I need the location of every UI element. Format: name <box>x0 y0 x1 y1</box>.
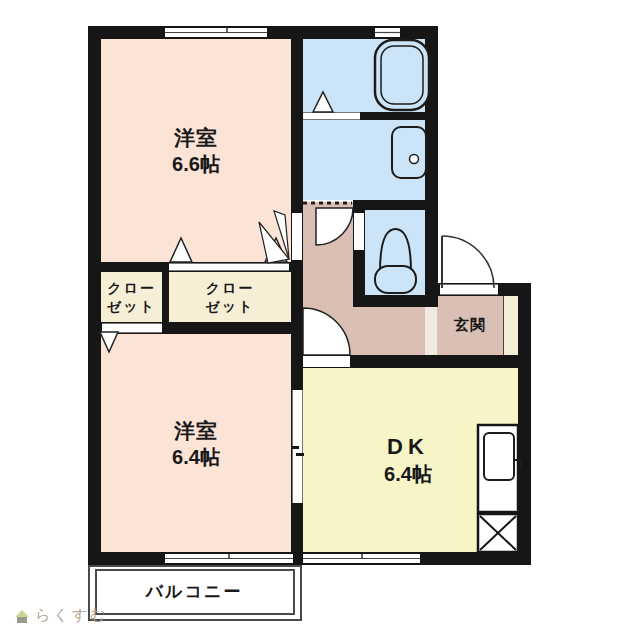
plan-symbols <box>0 0 640 640</box>
wash-basin-icon <box>392 127 426 178</box>
house-body <box>17 617 27 623</box>
dk-door-arc <box>303 308 350 355</box>
bathroom-folding-door-mark <box>313 92 333 112</box>
sliding-door-tick <box>296 453 304 456</box>
entrance-door-arc <box>442 236 494 288</box>
toilet-tank <box>375 266 416 293</box>
kitchen-sink-icon <box>484 433 514 480</box>
closet-folding-door-mark <box>170 238 192 262</box>
basin-drain <box>410 155 419 164</box>
house-roof <box>15 610 29 617</box>
sliding-door-tick <box>291 446 299 449</box>
logo-text: らくすむ <box>35 606 108 625</box>
site-logo: らくすむ <box>14 606 108 625</box>
floor-plan: 洋室 6.6帖 洋室 6.4帖 DK 6.4帖 クロー ゼット クロー ゼット … <box>0 0 640 640</box>
house-icon <box>14 608 30 624</box>
closet-left-door-mark <box>100 332 118 352</box>
washroom-door-arc <box>316 208 353 245</box>
bathtub-icon <box>375 40 429 110</box>
